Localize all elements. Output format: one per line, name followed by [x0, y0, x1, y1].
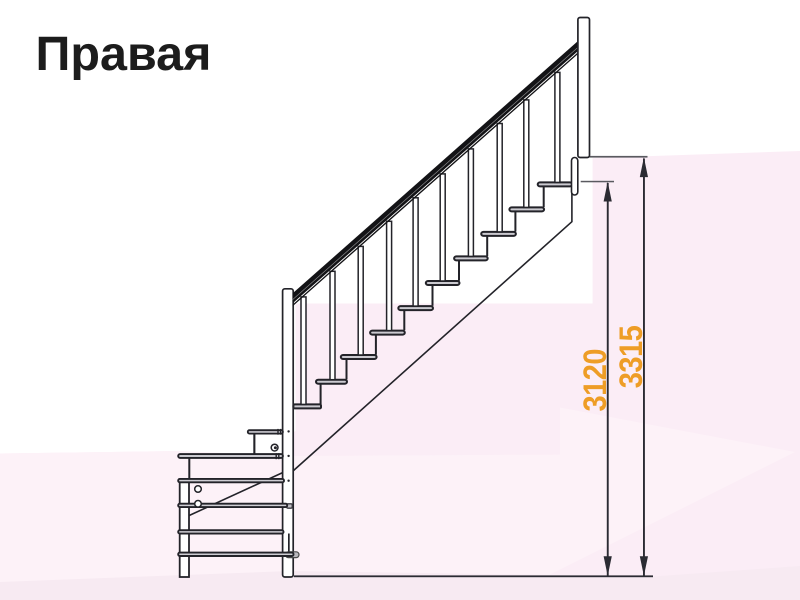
svg-text:3315: 3315 [612, 325, 649, 388]
svg-text:Правая: Правая [36, 27, 212, 81]
svg-text:3120: 3120 [576, 349, 613, 411]
